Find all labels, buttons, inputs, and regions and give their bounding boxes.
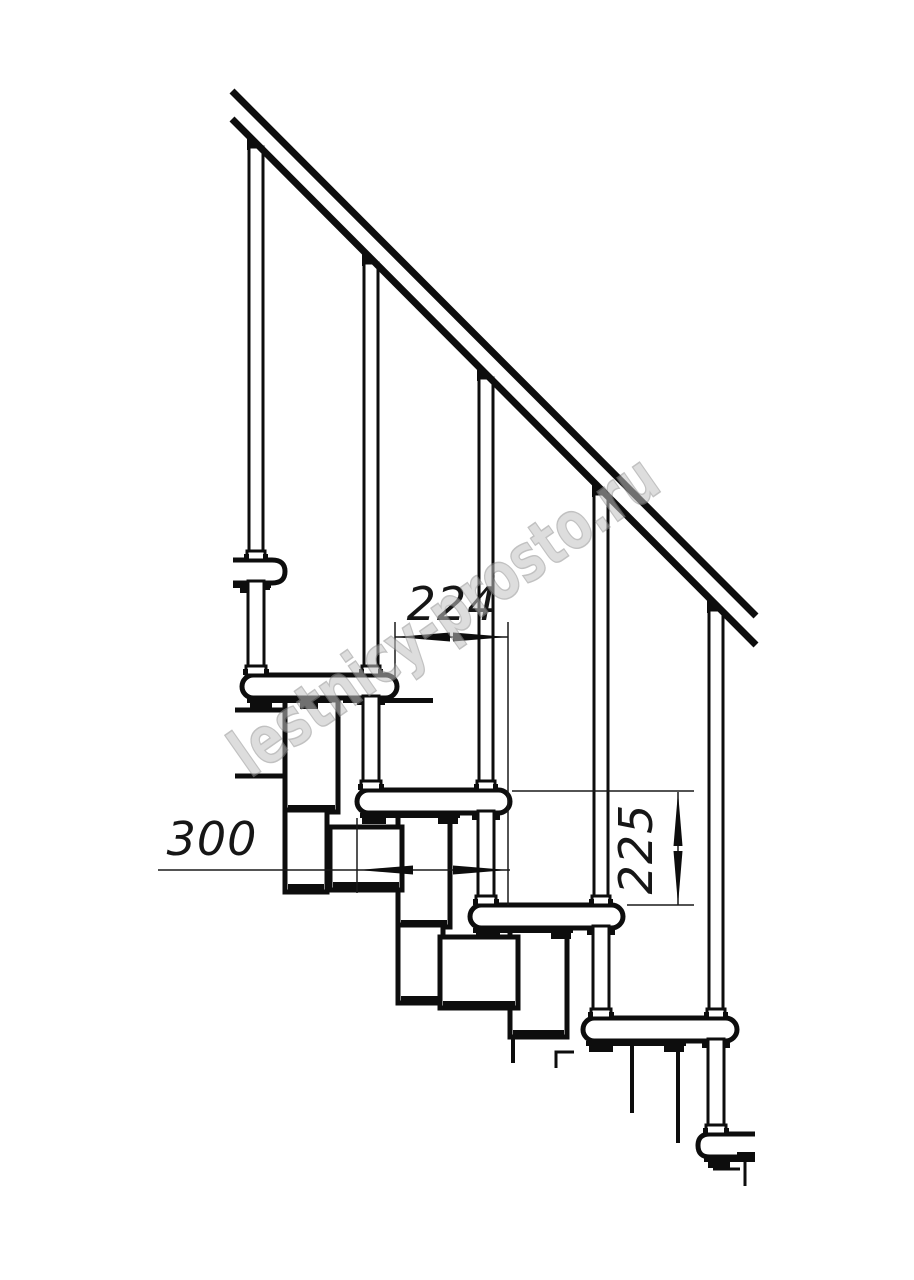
dimension-label-300: 300 bbox=[167, 812, 258, 866]
staircase-drawing: 224 300 225 lestnicy-prosto.ru bbox=[0, 0, 914, 1280]
stringer-module bbox=[398, 925, 443, 1003]
stringer-module bbox=[330, 827, 402, 890]
baluster bbox=[244, 135, 268, 560]
pipe bbox=[702, 1039, 730, 1134]
arrowhead-down bbox=[674, 851, 683, 905]
pipe bbox=[242, 581, 270, 675]
dimension-label-225: 225 bbox=[609, 804, 663, 895]
baluster bbox=[359, 251, 383, 675]
module-cut-lines bbox=[513, 1037, 678, 1143]
pipe bbox=[587, 926, 615, 1018]
drawing-sheet: 224 300 225 lestnicy-prosto.ru bbox=[0, 0, 914, 1280]
stringer-module bbox=[440, 937, 518, 1008]
pipe bbox=[472, 811, 500, 905]
baluster bbox=[704, 598, 728, 1018]
stringer-module bbox=[285, 810, 327, 892]
arrowhead-up bbox=[674, 792, 683, 846]
